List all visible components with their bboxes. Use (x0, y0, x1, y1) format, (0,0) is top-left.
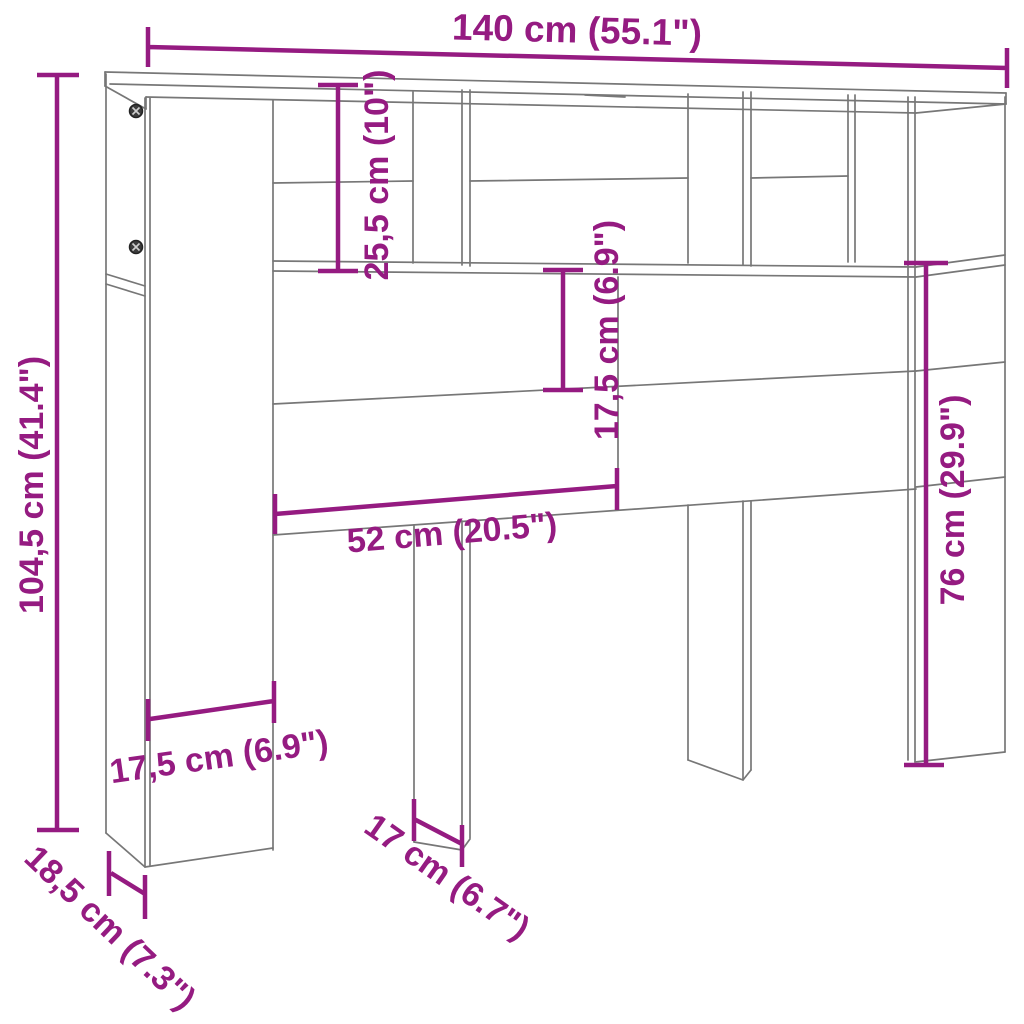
dim-label-side-panel-width: 17,5 cm (6.9") (107, 723, 330, 791)
dim-label-top-section-height: 25,5 cm (10") (358, 70, 396, 281)
cam-screw-icon (130, 241, 143, 254)
dimension-diagram: 140 cm (55.1") 104,5 cm (41.4") 25,5 cm … (0, 0, 1024, 1024)
dim-label-opening-width: 52 cm (20.5") (345, 505, 558, 560)
dim-label-height-total: 104,5 cm (41.4") (13, 356, 51, 614)
dim-label-leg-clearance-height: 76 cm (29.9") (934, 395, 972, 606)
middle-leg-right (688, 501, 751, 780)
dim-line-top-section-height (318, 85, 358, 271)
dim-label-headboard-strip-height: 17,5 cm (6.9") (588, 220, 626, 440)
headboard-back-panel (273, 277, 1005, 535)
headboard-dimension-drawing: 140 cm (55.1") 104,5 cm (41.4") 25,5 cm … (0, 0, 1024, 1024)
dim-label-leg-depth: 17 cm (6.7") (358, 806, 537, 947)
dim-line-headboard-strip-height (543, 270, 583, 390)
top-board (105, 72, 1006, 113)
cam-screw-icon (130, 105, 143, 118)
middle-leg-left (414, 521, 470, 850)
cam-screws (130, 105, 143, 254)
dim-label-width-total: 140 cm (55.1") (452, 6, 703, 53)
dimension-lines-layer (37, 27, 1007, 919)
